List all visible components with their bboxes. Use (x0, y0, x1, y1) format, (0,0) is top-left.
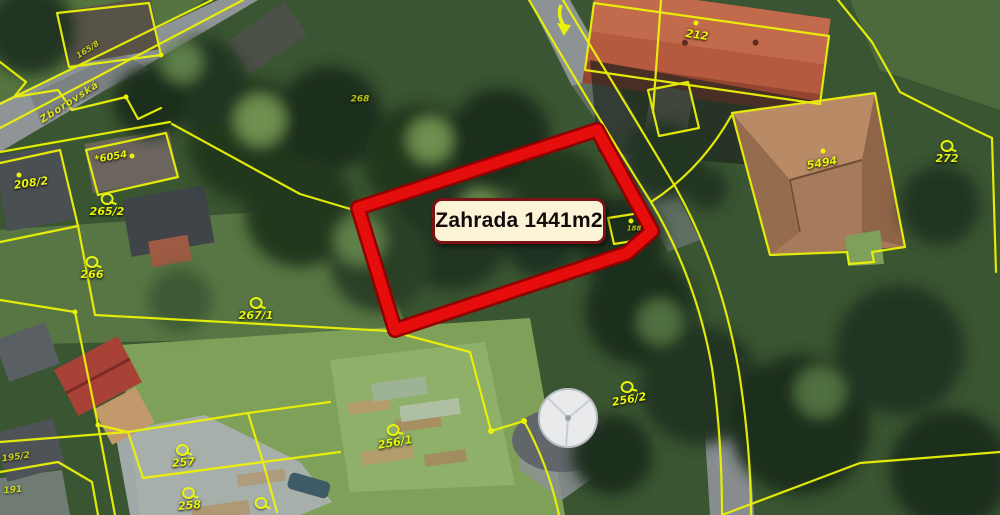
aerial-map-canvas[interactable]: 165/8208/2*6054265/2266267/1268212549427… (0, 0, 1000, 515)
highlight-label-text: Zahrada 1441m2 (435, 209, 602, 233)
water-tank (539, 389, 597, 447)
aerial-basemap (0, 0, 1000, 515)
highlight-label: Zahrada 1441m2 (432, 198, 606, 244)
